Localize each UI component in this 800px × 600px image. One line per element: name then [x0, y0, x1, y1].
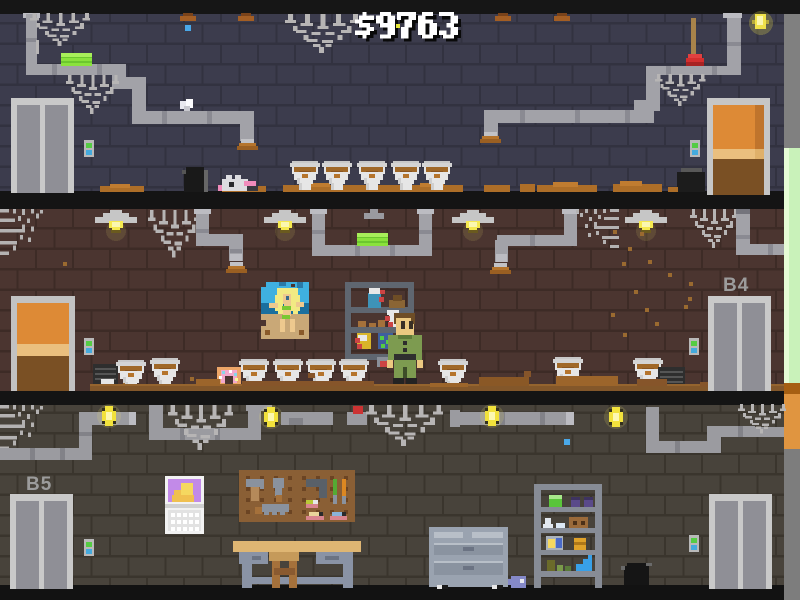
svg-text:B5: B5 [26, 474, 52, 495]
svg-text:B4: B4 [723, 275, 749, 296]
